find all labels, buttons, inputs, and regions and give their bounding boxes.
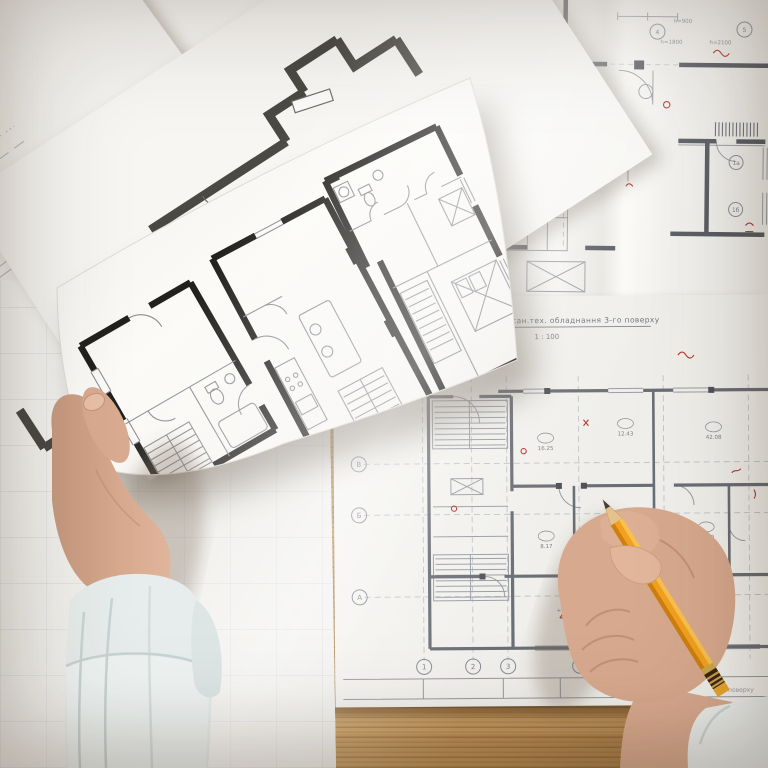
photo-architect-desk: 4 5 1а 1б h=900 h=1800 h=2100 <box>0 0 768 768</box>
right-hand <box>0 0 768 768</box>
